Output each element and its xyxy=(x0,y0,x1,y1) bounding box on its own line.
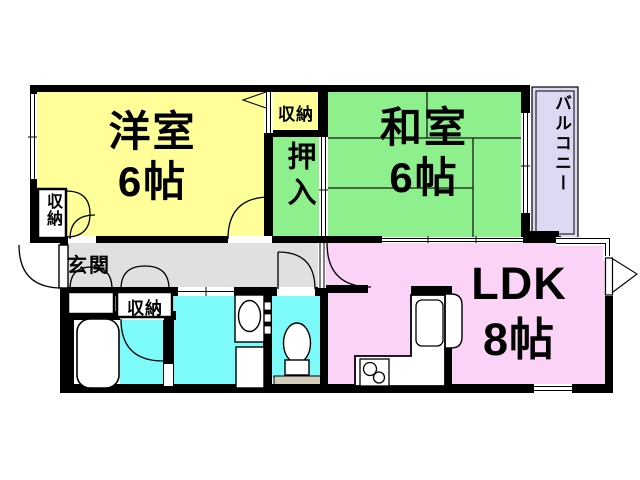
storage-hall-label: 収納 xyxy=(118,294,172,319)
balcony-label: バルコニー xyxy=(538,94,574,236)
western-room-label: 洋室 6帖 xyxy=(55,107,250,207)
storage-bedroom-label: 収納 xyxy=(41,193,64,236)
storage-top-label: 収納 xyxy=(272,100,320,125)
oshiire-label: 押入 xyxy=(278,141,320,237)
shoe-cabinet-box xyxy=(68,292,114,314)
floorplan: 洋室 6帖 和室 6帖 LDK 8帖 収納 押入 バルコニー 玄関 収納 収納 xyxy=(0,0,640,480)
western-room-size: 6帖 xyxy=(55,157,250,207)
japanese-room-label: 和室 6帖 xyxy=(330,103,518,203)
japanese-room-name: 和室 xyxy=(330,103,518,153)
floorplan-drawing xyxy=(0,0,640,480)
toilet-icon xyxy=(284,323,311,375)
washbasin-icon xyxy=(235,295,264,342)
ldk-size: 8帖 xyxy=(420,312,618,368)
ldk-label: LDK 8帖 xyxy=(420,256,618,368)
western-room-name: 洋室 xyxy=(55,107,250,157)
japanese-room-size: 6帖 xyxy=(330,153,518,203)
stove-2-burner-icon xyxy=(360,359,389,386)
bathtub-icon xyxy=(77,319,119,388)
entrance-door-arc xyxy=(19,245,62,288)
washing-machine-icon xyxy=(236,347,264,388)
ldk-name: LDK xyxy=(420,256,618,312)
entrance-label: 玄関 xyxy=(67,249,111,278)
